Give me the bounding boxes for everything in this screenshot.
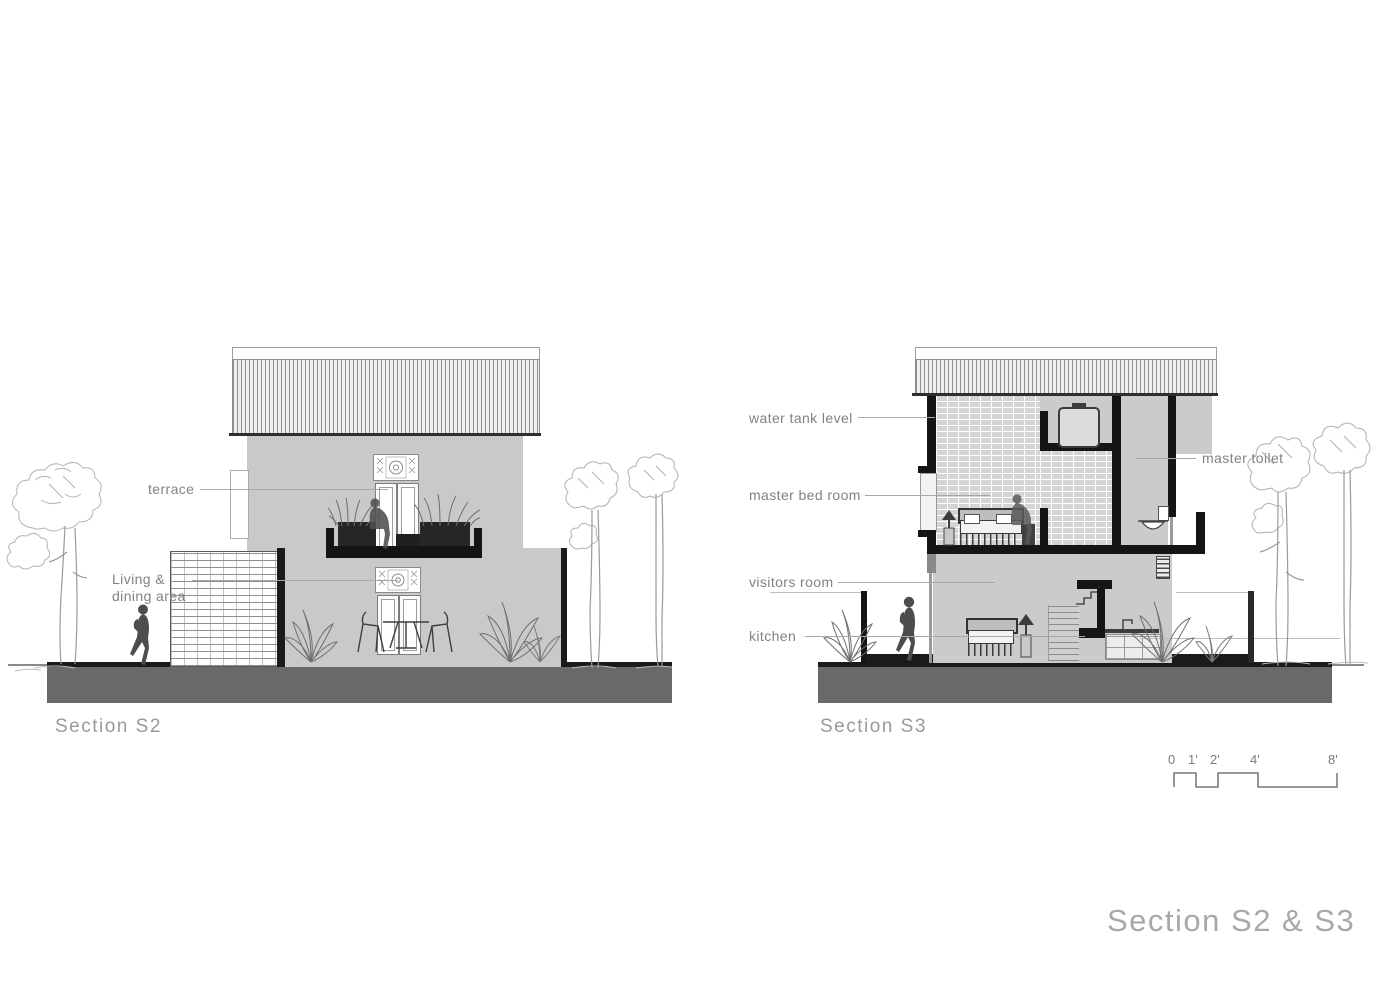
visitors-room-leader-line <box>838 582 995 583</box>
tank-niche-wall <box>1040 411 1048 447</box>
living-dining-leader-line <box>192 580 398 581</box>
plant-sketch <box>1128 596 1248 664</box>
bed-mattress <box>968 630 1014 644</box>
sitting-person-figure <box>1002 494 1042 546</box>
scale-bar-line <box>1170 770 1342 790</box>
section-s2-caption: Section S2 <box>55 716 162 738</box>
first-floor-slab <box>927 545 1205 554</box>
living-dining-label-line1: Living & <box>112 571 165 588</box>
sitting-person-figure <box>360 498 400 550</box>
window-head <box>918 466 936 473</box>
drawing-canvas: terrace Living & dining area Section S2 <box>0 0 1390 982</box>
tree-sketch <box>5 440 145 675</box>
balcony-slab <box>326 546 482 558</box>
scale-tick-2: 2' <box>1210 752 1220 767</box>
toilet-right-wall <box>1168 396 1176 517</box>
terrace-leader-line <box>200 489 388 490</box>
master-bed-label: master bed room <box>749 487 861 504</box>
scale-tick-4: 4' <box>1250 752 1260 767</box>
bed-skirt <box>968 643 1012 656</box>
roof-side-soffit <box>1176 396 1212 454</box>
toilet-right-wall-thin <box>1170 517 1173 545</box>
facade-column-outline <box>230 470 249 539</box>
compound-wall-line <box>770 592 861 593</box>
kitchen-label: kitchen <box>749 628 796 645</box>
balcony-parapet <box>1196 512 1205 545</box>
living-dining-label-line2: dining area <box>112 588 186 605</box>
water-tank <box>1058 407 1100 448</box>
washbasin <box>1138 518 1168 540</box>
walking-person-figure <box>891 596 927 664</box>
kitchen-leader-line <box>805 636 1085 637</box>
left-cut-wall <box>927 396 936 473</box>
water-tank-leader-line <box>858 417 935 418</box>
master-bed-leader-line <box>865 495 990 496</box>
scale-tick-0: 0 <box>1168 752 1175 767</box>
plant-sketch <box>822 602 878 664</box>
lower-stair-flight <box>1048 605 1079 661</box>
balcony-lip-right <box>474 528 482 548</box>
corrugated-roof <box>232 359 540 435</box>
table-and-chairs <box>350 610 460 654</box>
master-toilet-leader-line <box>1136 458 1196 459</box>
section-s3-caption: Section S3 <box>820 716 927 738</box>
table-lamp <box>940 510 958 546</box>
planter-plants-right <box>414 488 480 526</box>
tree-sketch <box>552 448 692 674</box>
water-tank-label: water tank level <box>749 410 853 427</box>
vent-louver <box>1156 556 1170 579</box>
ground-fill <box>818 667 1332 703</box>
plant-sketch <box>283 602 339 664</box>
corrugated-roof <box>915 359 1217 395</box>
brick-wall <box>170 551 280 667</box>
visitors-room-label: visitors room <box>749 574 834 591</box>
plant-sketch <box>476 592 562 664</box>
stair-cut-wall <box>1112 396 1121 553</box>
balcony-lip-left <box>326 528 334 548</box>
scale-tick-8: 8' <box>1328 752 1338 767</box>
bed-pillow <box>964 514 980 524</box>
window-sill <box>918 530 936 537</box>
bedroom-window <box>920 473 937 532</box>
sheet-title: Section S2 & S3 <box>1107 903 1355 939</box>
upper-door-transom <box>373 454 419 481</box>
left-wall-thin <box>929 573 932 663</box>
scale-tick-1: 1' <box>1188 752 1198 767</box>
terrace-label: terrace <box>148 481 194 498</box>
master-toilet-label: master toilet <box>1202 450 1283 467</box>
